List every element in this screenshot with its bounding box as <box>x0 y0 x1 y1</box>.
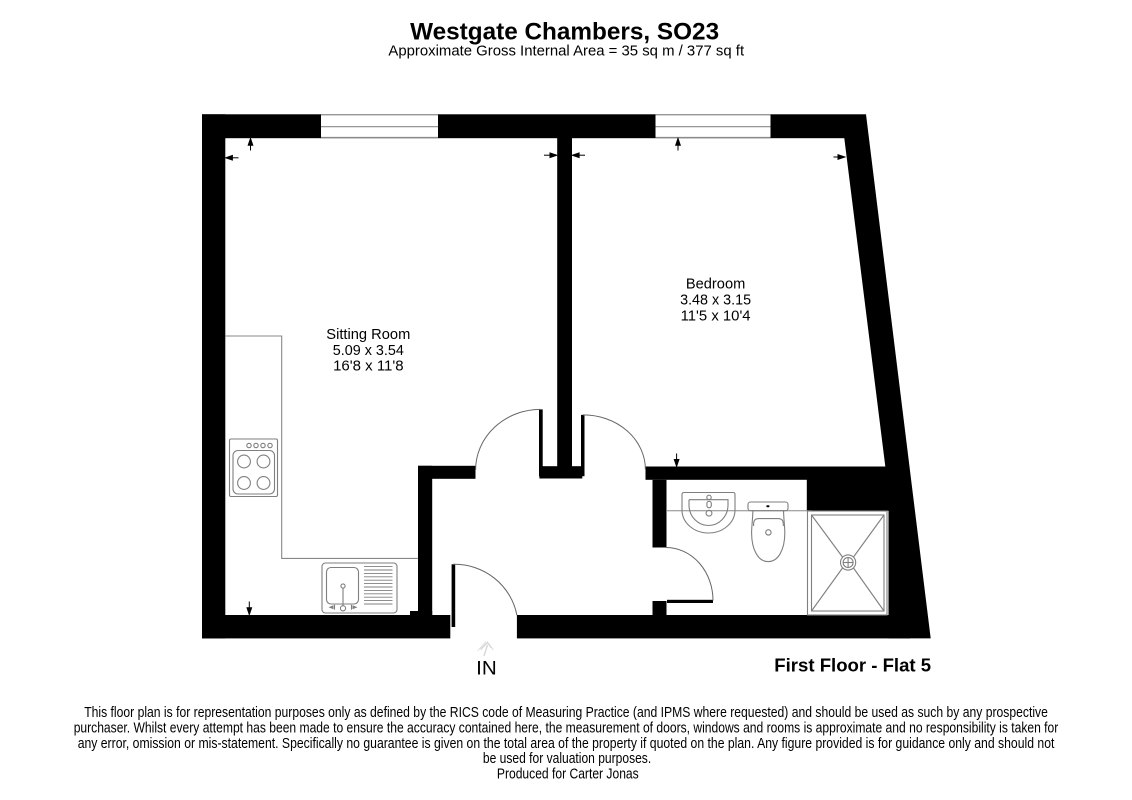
svg-text:Bedroom: Bedroom <box>686 277 745 293</box>
svg-text:Westgate Chambers, SO23: Westgate Chambers, SO23 <box>410 19 719 46</box>
svg-text:11'5 x 10'4: 11'5 x 10'4 <box>681 309 751 325</box>
svg-text:Produced for Carter Jonas: Produced for Carter Jonas <box>497 766 639 782</box>
svg-text:Approximate Gross Internal Are: Approximate Gross Internal Area = 35 sq … <box>388 43 745 59</box>
svg-text:First Floor - Flat 5: First Floor - Flat 5 <box>774 655 931 676</box>
svg-text:be used for valuation purposes: be used for valuation purposes. <box>483 751 651 767</box>
svg-text:purchaser. Whilst every attemp: purchaser. Whilst every attempt has been… <box>74 721 1059 737</box>
svg-text:3.48 x 3.15: 3.48 x 3.15 <box>680 293 751 309</box>
svg-text:16'8 x 11'8: 16'8 x 11'8 <box>333 359 404 375</box>
svg-text:IN: IN <box>476 658 497 680</box>
svg-text:This floor plan is for represe: This floor plan is for representation pu… <box>84 705 1048 721</box>
svg-text:any error, omission or mis-sta: any error, omission or mis-statement. Sp… <box>78 736 1055 752</box>
svg-text:Sitting Room: Sitting Room <box>326 327 410 343</box>
svg-text:5.09 x 3.54: 5.09 x 3.54 <box>333 343 404 359</box>
